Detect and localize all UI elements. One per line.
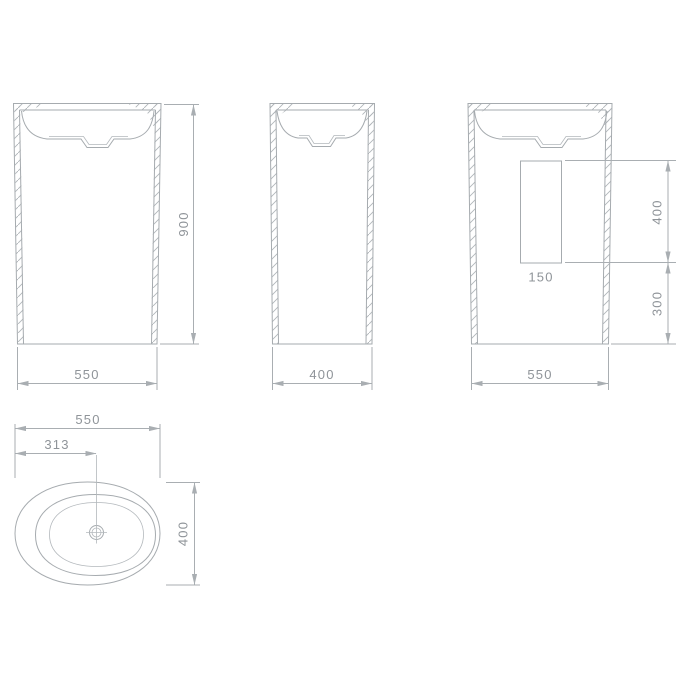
plan-depth-label: 400 <box>176 521 191 546</box>
back-cutout-opening <box>521 161 562 263</box>
plan-view <box>15 455 160 585</box>
basin-technical-drawing: 900 550 400 <box>0 0 700 700</box>
side-bowl-floor-line <box>299 136 345 144</box>
front-left-rim-hatch <box>14 104 44 112</box>
back-cutout-height-label: 400 <box>650 199 665 224</box>
drain-symbol <box>86 455 107 544</box>
front-view <box>14 104 162 345</box>
plan-width-dimension: 550 <box>15 412 160 478</box>
front-height-label: 900 <box>176 211 191 236</box>
back-cutout-offset-label: 300 <box>650 291 665 316</box>
back-left-rim-hatch <box>468 104 498 112</box>
side-view <box>270 104 375 345</box>
front-bowl-floor-line <box>49 137 128 145</box>
plan-inner-rim <box>36 495 156 576</box>
front-width-label: 550 <box>74 367 99 382</box>
plan-depth-dimension: 400 <box>166 483 200 586</box>
plan-width-label: 550 <box>75 412 100 427</box>
back-bowl-floor-line <box>502 137 581 145</box>
side-left-rim-hatch <box>270 104 297 114</box>
back-cutout-width-label: 150 <box>528 270 553 285</box>
back-width-dimension: 550 <box>472 347 609 390</box>
side-right-rim-hatch <box>348 104 374 130</box>
plan-outer-rim <box>15 482 160 585</box>
back-cutout-dimensions: 400 300 <box>565 161 676 345</box>
front-right-rim-hatch <box>128 104 161 132</box>
back-width-label: 550 <box>527 367 552 382</box>
plan-drain-offset-dimension: 313 <box>16 437 97 454</box>
front-height-dimension: 900 <box>160 105 199 345</box>
back-right-rim-hatch <box>580 104 612 130</box>
side-outline <box>270 104 375 345</box>
back-bowl-curve <box>475 111 608 148</box>
front-width-dimension: 550 <box>18 347 158 390</box>
side-width-dimension: 400 <box>273 347 373 390</box>
front-outline <box>14 104 162 345</box>
plan-drain-offset-label: 313 <box>44 437 69 452</box>
side-bowl-curve <box>277 111 367 147</box>
back-view: 150 <box>468 104 612 345</box>
side-width-label: 400 <box>309 367 334 382</box>
technical-drawing-sheet: 900 550 400 <box>0 0 700 700</box>
